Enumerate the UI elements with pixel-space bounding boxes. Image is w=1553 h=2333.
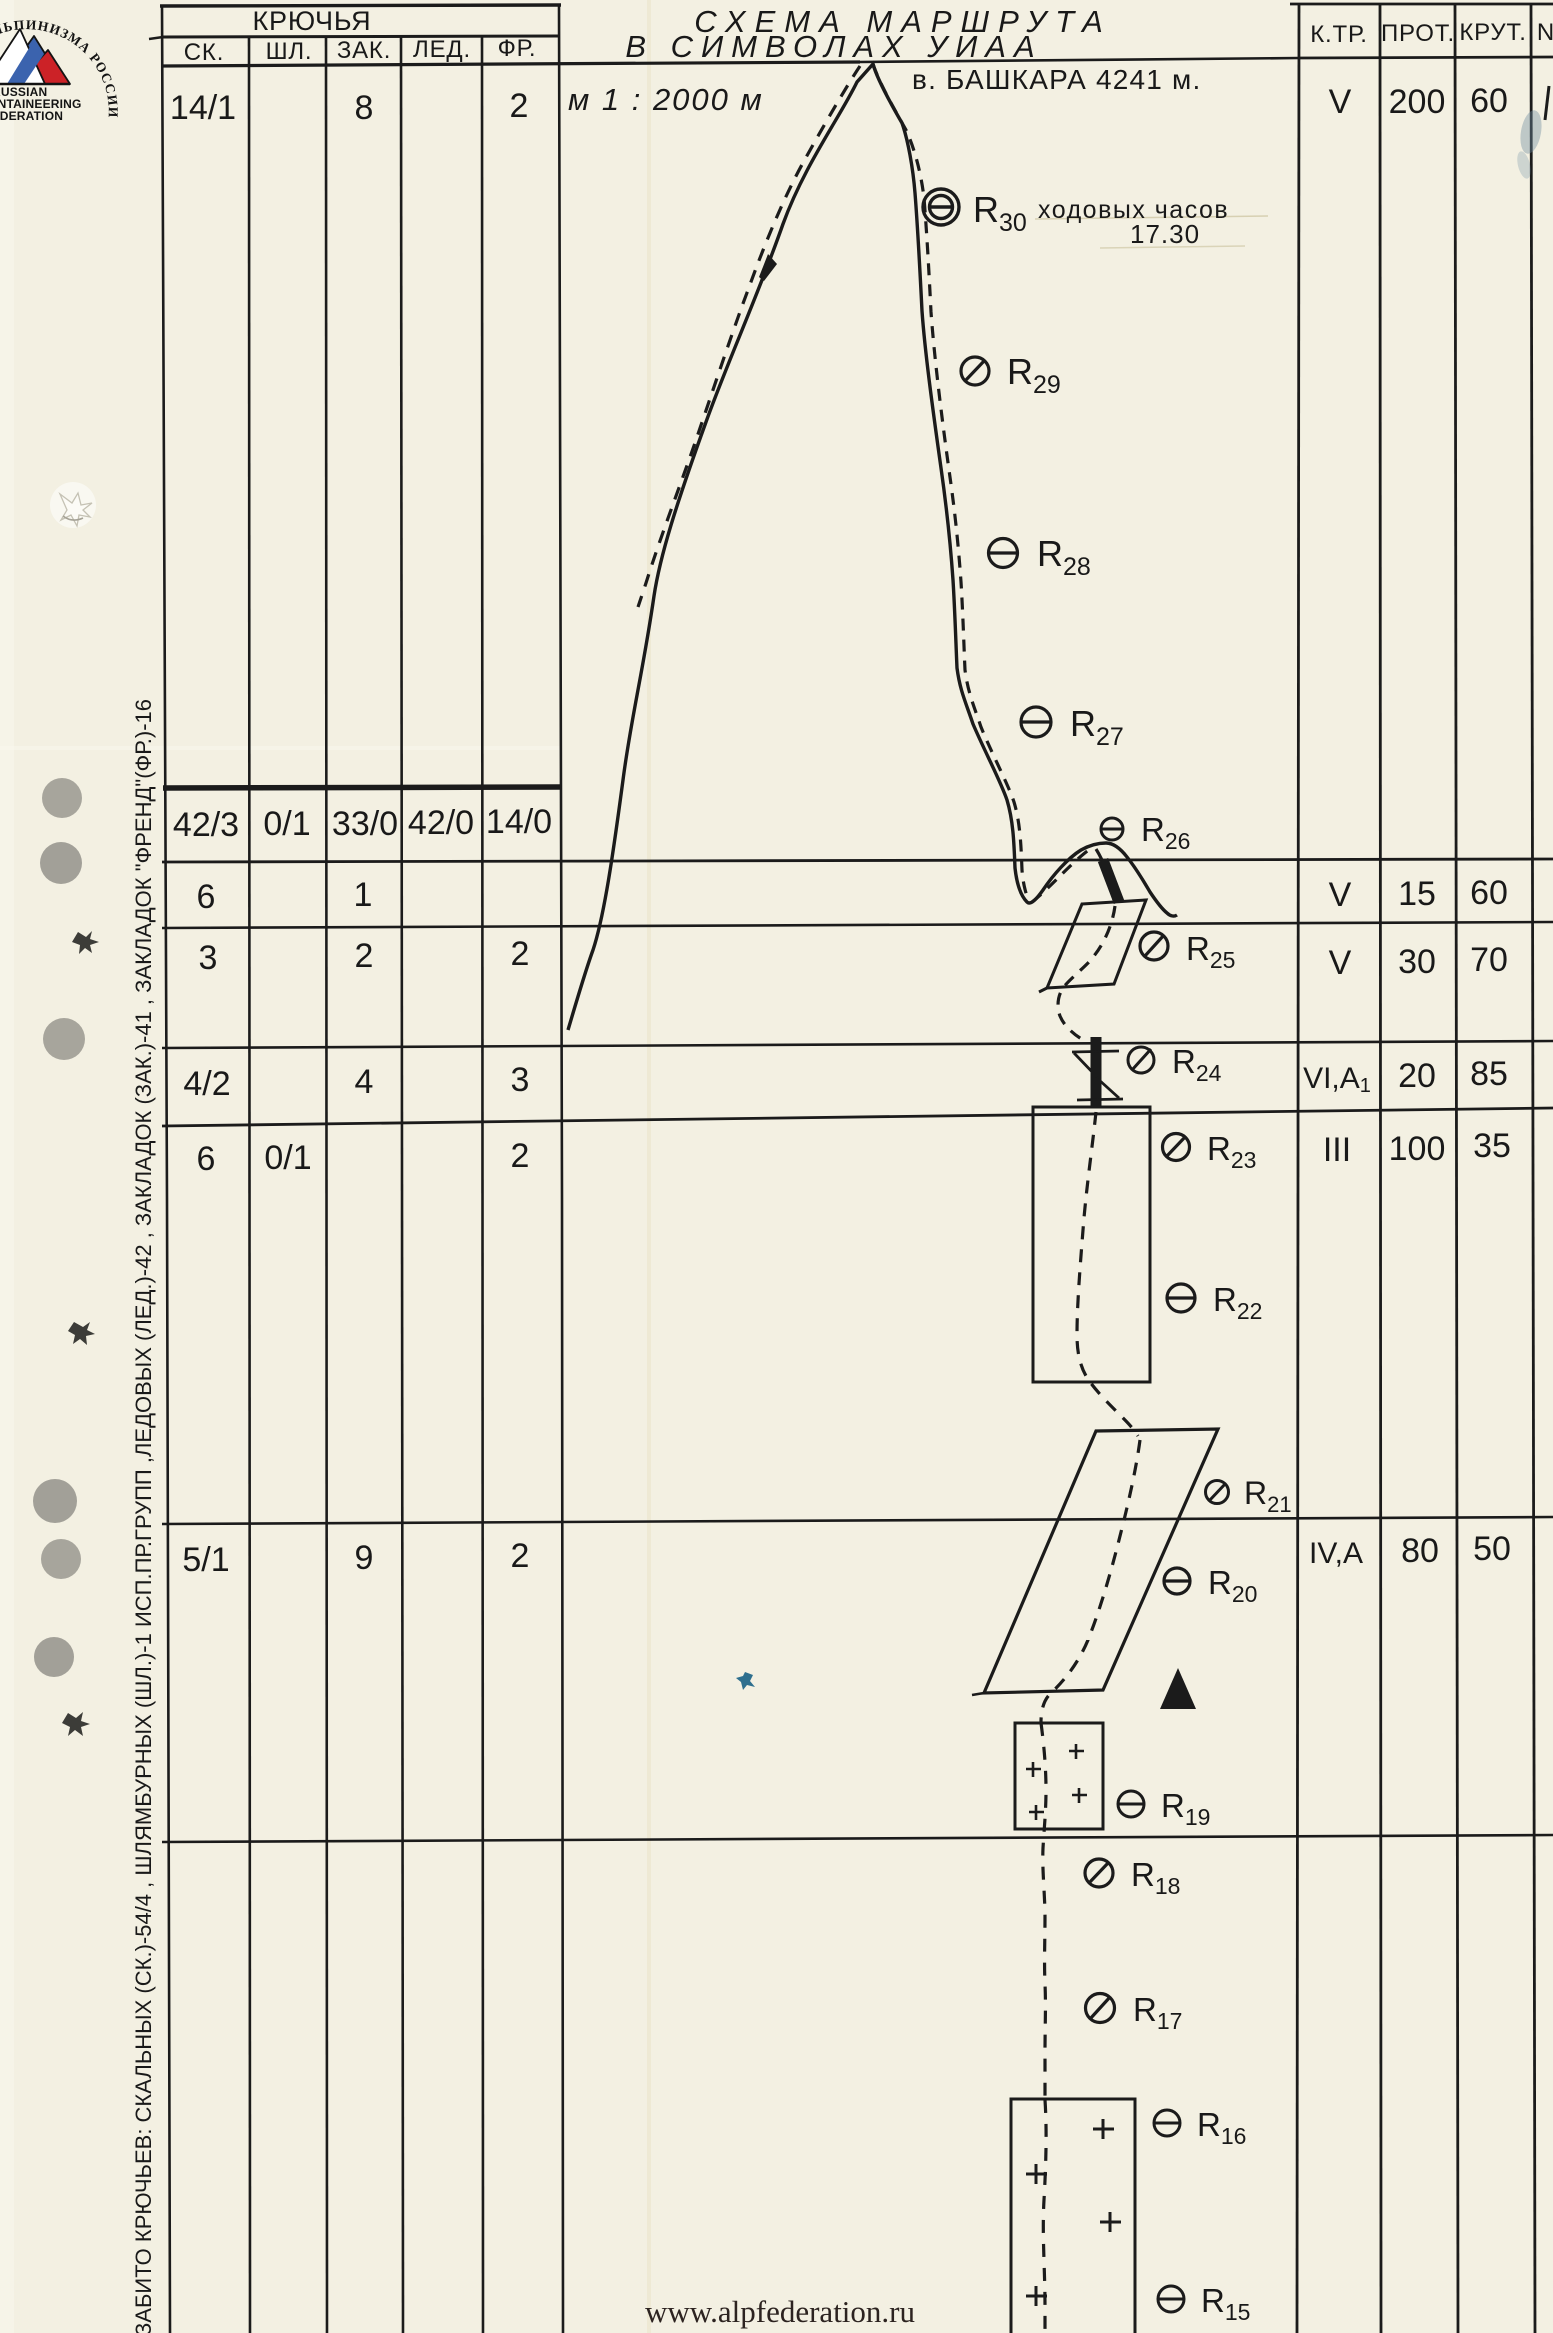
svg-text:8: 8: [355, 89, 374, 127]
svg-text:N: N: [1537, 19, 1553, 46]
svg-text:КРУТ.: КРУТ.: [1459, 19, 1526, 46]
svg-text:14/1: 14/1: [170, 89, 236, 127]
svg-text:60: 60: [1470, 82, 1508, 120]
svg-text:30: 30: [1398, 943, 1436, 981]
svg-text:2: 2: [511, 935, 530, 973]
svg-text:1: 1: [354, 876, 373, 914]
svg-text:ПРОТ.: ПРОТ.: [1381, 20, 1455, 47]
svg-text:20: 20: [1398, 1057, 1436, 1095]
svg-text:2: 2: [511, 1537, 530, 1575]
svg-text:в. БАШКАРА 4241 м.: в. БАШКАРА 4241 м.: [912, 64, 1201, 95]
svg-text:42/3: 42/3: [173, 806, 239, 844]
svg-text:КРЮЧЬЯ: КРЮЧЬЯ: [253, 6, 372, 36]
svg-text:V: V: [1329, 83, 1352, 121]
svg-text:ФР.: ФР.: [498, 35, 537, 62]
svg-text:В СИМВОЛАХ УИАА: В СИМВОЛАХ УИАА: [625, 29, 1042, 64]
svg-text:м 1 : 2000 м: м 1 : 2000 м: [568, 82, 764, 117]
svg-text:2: 2: [510, 87, 529, 125]
svg-text:V: V: [1329, 876, 1352, 914]
svg-text:ЗАК.: ЗАК.: [337, 37, 391, 64]
svg-text:4/2: 4/2: [183, 1065, 230, 1103]
svg-text:80: 80: [1401, 1532, 1439, 1570]
svg-text:2: 2: [511, 1137, 530, 1175]
svg-text:33/0: 33/0: [332, 805, 398, 843]
svg-text:www.alpfederation.ru: www.alpfederation.ru: [645, 2294, 915, 2329]
svg-text:К.ТР.: К.ТР.: [1310, 21, 1367, 48]
svg-text:3: 3: [199, 939, 218, 977]
svg-text:100: 100: [1389, 1130, 1446, 1168]
svg-text:70: 70: [1470, 941, 1508, 979]
svg-text:85: 85: [1470, 1055, 1508, 1093]
svg-text:42/0: 42/0: [408, 804, 474, 842]
svg-text:15: 15: [1398, 875, 1436, 913]
svg-text:СК.: СК.: [184, 39, 224, 66]
svg-text:9: 9: [355, 1539, 374, 1577]
svg-text:V: V: [1329, 944, 1352, 982]
svg-text:6: 6: [197, 878, 216, 916]
svg-text:0/1: 0/1: [264, 1139, 311, 1177]
svg-text:14/0: 14/0: [486, 803, 552, 841]
svg-text:60: 60: [1470, 874, 1508, 912]
svg-text:200: 200: [1389, 83, 1446, 121]
svg-text:2: 2: [355, 937, 374, 975]
svg-text:50: 50: [1473, 1530, 1511, 1568]
svg-text:17.30: 17.30: [1130, 219, 1200, 249]
svg-text:4: 4: [355, 1063, 374, 1101]
svg-text:ЛЕД.: ЛЕД.: [413, 36, 471, 63]
svg-text:ШЛ.: ШЛ.: [266, 38, 313, 65]
svg-text:III: III: [1323, 1131, 1351, 1169]
svg-text:3: 3: [511, 1061, 530, 1099]
svg-text:35: 35: [1473, 1127, 1511, 1165]
svg-text:0/1: 0/1: [263, 805, 310, 843]
svg-text:IV,A: IV,A: [1309, 1537, 1363, 1570]
svg-text:5/1: 5/1: [182, 1541, 229, 1579]
svg-text:ЗАБИТО КРЮЧЬЕВ: СКАЛЬНЫХ (СК.): ЗАБИТО КРЮЧЬЕВ: СКАЛЬНЫХ (СК.)-54/4 , ШЛ…: [131, 699, 156, 2333]
svg-text:6: 6: [197, 1140, 216, 1178]
svg-text:FEDERATION: FEDERATION: [0, 109, 63, 123]
